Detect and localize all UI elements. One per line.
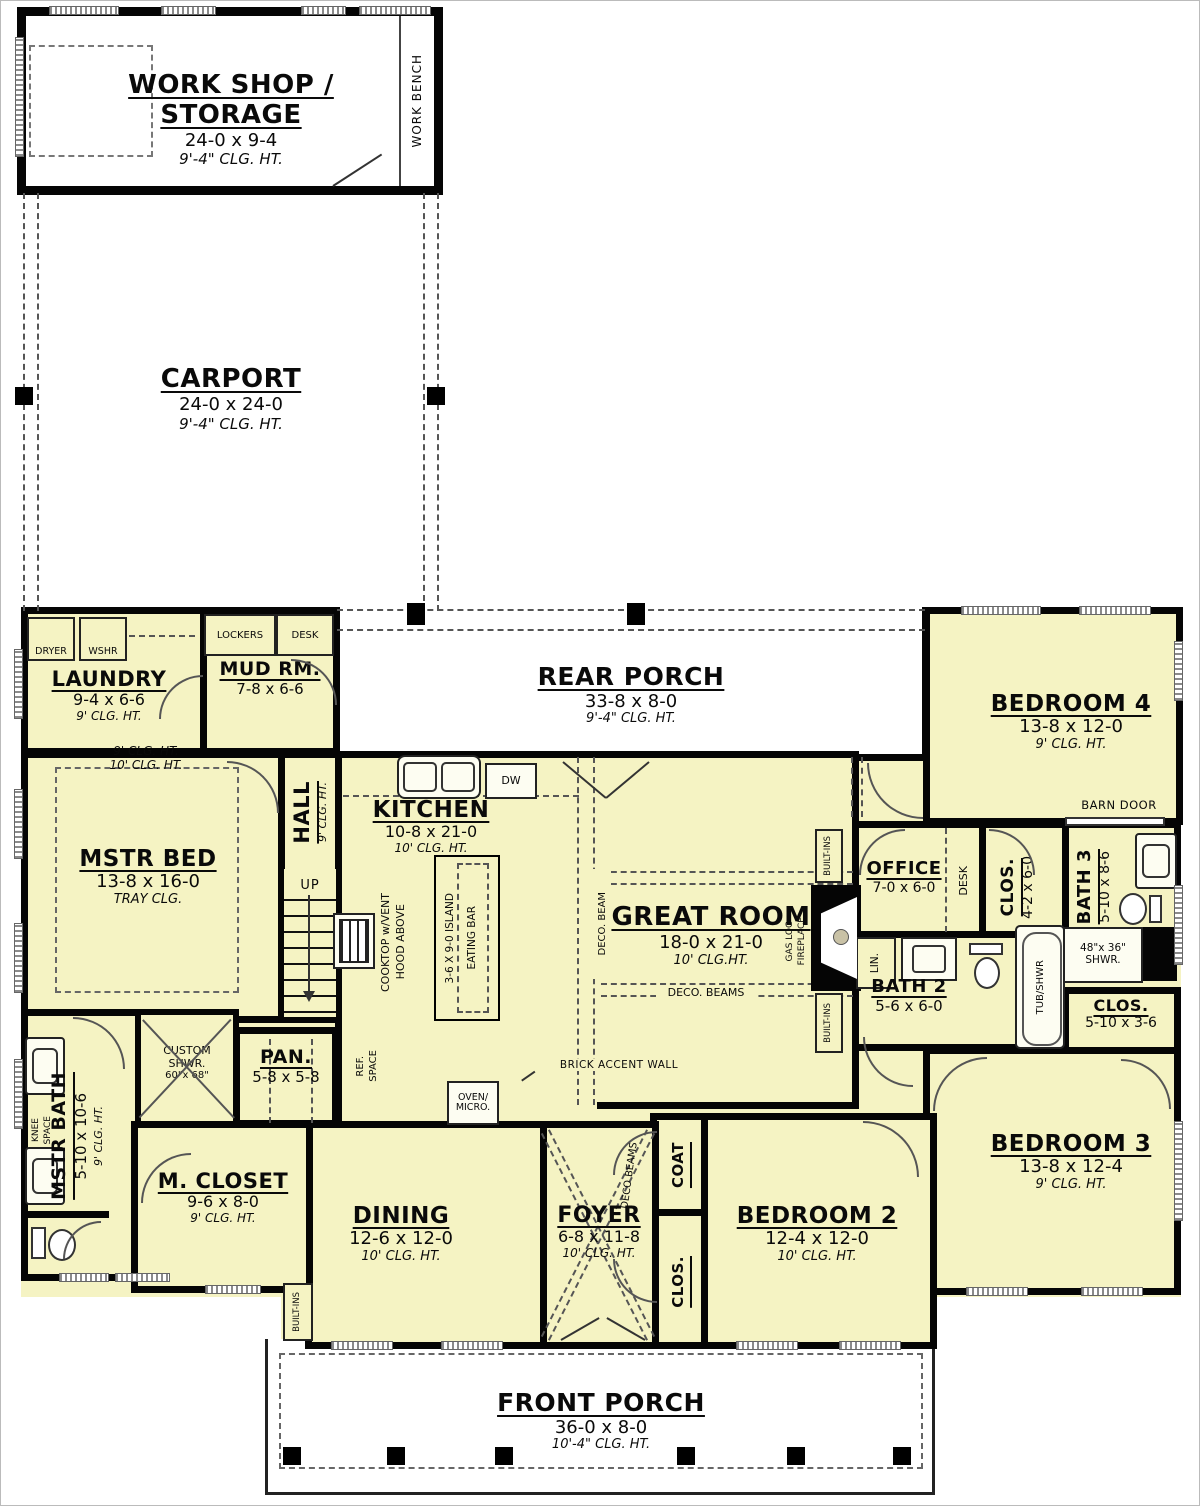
hall-label: HALL 9' CLG. HT. xyxy=(284,755,334,870)
mstr-bath-dims: 5-10 x 10-6 xyxy=(72,1093,90,1180)
linen-text: LIN. xyxy=(870,953,882,973)
bath3-sink-bowl xyxy=(1142,844,1170,878)
window-laundry-left xyxy=(14,649,23,719)
bath3-toilet-tank xyxy=(1149,895,1162,923)
window-workshop-top-4 xyxy=(359,6,431,15)
stairs-arrow-shaft xyxy=(308,895,310,991)
window-dining-bottom-2 xyxy=(441,1341,503,1350)
window-wc-bottom-2 xyxy=(115,1273,170,1282)
kitchen-island: 3-6 X 9-0 ISLAND EATING BAR xyxy=(434,855,500,1021)
mstr-bed-clg-pair: 9' CLG. HT. 10' CLG. HT. xyxy=(76,745,216,773)
bath2-toilet-tank xyxy=(969,943,1003,955)
kitchen-sink xyxy=(397,755,481,799)
barn-door-slab xyxy=(1065,817,1165,826)
carport-post-left xyxy=(15,387,33,405)
bedroom2-dims: 12-4 x 12-0 xyxy=(707,1229,927,1250)
pan-label: PAN. 5-8 x 5-8 xyxy=(239,1047,333,1086)
workshop-clg: 9'-4" CLG. HT. xyxy=(81,151,381,168)
sink-bowl-left xyxy=(403,762,437,792)
window-bedroom2-bottom-2 xyxy=(839,1341,901,1350)
deco-beam-label: DECO. BEAM xyxy=(593,869,611,979)
window-wc-bottom-1 xyxy=(59,1273,109,1282)
mstr-bed-name: MSTR BED xyxy=(53,846,243,872)
bath2-label: BATH 2 5-6 x 6-0 xyxy=(859,977,959,1015)
front-porch-post-6 xyxy=(893,1447,911,1465)
rear-porch-dims: 33-8 x 8-0 xyxy=(431,692,831,713)
window-mstr-bed-left-2 xyxy=(14,923,23,993)
kitchen-dims: 10-8 x 21-0 xyxy=(341,823,521,841)
dishwasher-text: DW xyxy=(501,775,520,787)
barn-door-text: BARN DOOR xyxy=(1081,798,1156,812)
kitchen-label: KITCHEN 10-8 x 21-0 10' CLG. HT. xyxy=(341,797,521,856)
built-ins-upper-text: BUILT-INS xyxy=(824,836,833,876)
mud-desk-text: DESK xyxy=(292,630,319,641)
cooktop-line2: HOOD ABOVE xyxy=(394,904,407,979)
bedroom3-name: BEDROOM 3 xyxy=(961,1131,1181,1157)
barn-door-label: BARN DOOR xyxy=(1063,799,1175,812)
island-dims-text: 3-6 X 9-0 ISLAND xyxy=(445,893,457,983)
office-desk-label: DESK xyxy=(949,841,977,921)
kitchen-name: KITCHEN xyxy=(341,797,521,823)
carport-post-right xyxy=(427,387,445,405)
front-porch-name: FRONT PORCH xyxy=(451,1389,751,1418)
bedroom3-clg: 9' CLG. HT. xyxy=(961,1178,1181,1193)
rear-porch-name: REAR PORCH xyxy=(431,663,831,692)
dining-name: DINING xyxy=(311,1203,491,1229)
bath3-name: BATH 3 xyxy=(1074,849,1095,924)
bedroom3-label: BEDROOM 3 13-8 x 12-4 9' CLG. HT. xyxy=(961,1131,1181,1193)
front-porch-post-2 xyxy=(387,1447,405,1465)
window-bedroom3-right xyxy=(1174,1121,1183,1221)
front-porch-post-4 xyxy=(677,1447,695,1465)
built-ins-dining-box: BUILT-INS xyxy=(283,1283,313,1341)
built-ins-lower-box: BUILT-INS xyxy=(815,993,843,1053)
window-workshop-left xyxy=(15,37,24,157)
fireplace-gas-log xyxy=(833,929,849,945)
kitchen-clg: 10' CLG. HT. xyxy=(341,842,521,856)
eating-bar-text: EATING BAR xyxy=(467,906,479,970)
dryer-text: DRYER xyxy=(35,647,67,657)
window-mstr-bed-left-1 xyxy=(14,789,23,859)
clos-bed3-dims: 5-10 x 3-6 xyxy=(1067,1015,1175,1031)
front-porch-post-5 xyxy=(787,1447,805,1465)
mstr-bed-clg-outer: 9' CLG. HT. xyxy=(76,745,216,759)
mstr-bed-dims: 13-8 x 16-0 xyxy=(53,872,243,893)
window-dining-bottom-1 xyxy=(331,1341,393,1350)
lockers-text: LOCKERS xyxy=(217,630,263,641)
window-bath3-right xyxy=(1174,885,1183,965)
front-porch-post-1 xyxy=(283,1447,301,1465)
window-bedroom4-right xyxy=(1174,641,1183,701)
knee-line1: KNEE xyxy=(31,1118,41,1142)
rear-porch-post-2 xyxy=(627,603,645,625)
mstr-bed-clg: TRAY CLG. xyxy=(53,893,243,908)
window-workshop-top-2 xyxy=(161,6,216,15)
gas-log-line1: GAS LOG xyxy=(785,921,795,961)
brick-accent-text: BRICK ACCENT WALL xyxy=(560,1059,678,1071)
dishwasher-box: DW xyxy=(485,763,537,799)
ref-line2: SPACE xyxy=(368,1050,379,1082)
foyer-dims: 6-8 x 11-8 xyxy=(539,1228,659,1246)
window-bedroom4-top-1 xyxy=(961,606,1041,615)
stairs-up-label: UP xyxy=(284,875,336,894)
built-ins-lower-text: BUILT-INS xyxy=(824,1003,833,1043)
carport-dims: 24-0 x 24-0 xyxy=(121,395,341,416)
shower-wall-block xyxy=(1143,927,1177,981)
work-bench-text: WORK BENCH xyxy=(410,54,424,148)
pan-dims: 5-8 x 5-8 xyxy=(239,1069,333,1086)
dining-clg: 10' CLG. HT. xyxy=(311,1250,491,1265)
custom-shwr-label: CUSTOM SHWR. 60"x 68" xyxy=(145,1045,229,1082)
sink-bowl-right xyxy=(441,762,475,792)
window-bedroom3-bottom-1 xyxy=(966,1287,1028,1296)
bedroom3-dims: 13-8 x 12-4 xyxy=(961,1157,1181,1178)
cooktop-box xyxy=(333,913,375,969)
dining-label: DINING 12-6 x 12-0 10' CLG. HT. xyxy=(311,1203,491,1265)
window-workshop-top-1 xyxy=(49,6,119,15)
bath3-toilet-bowl xyxy=(1119,893,1147,925)
gas-log-line2: FIREPLACE xyxy=(797,917,807,965)
ref-space-label: REF. SPACE xyxy=(339,1033,395,1099)
rear-porch-clg: 9'-4" CLG. HT. xyxy=(431,712,831,727)
bath2-sink xyxy=(901,937,957,981)
m-closet-clg: 9' CLG. HT. xyxy=(139,1212,307,1226)
cooktop-burners xyxy=(339,919,369,963)
carport-name: CARPORT xyxy=(121,365,341,395)
deco-beams-label: DECO. BEAMS xyxy=(656,987,756,1000)
hall-name: HALL xyxy=(290,781,314,844)
window-mstr-bath-left xyxy=(14,1059,23,1129)
work-bench-label: WORK BENCH xyxy=(401,41,433,161)
bedroom4-name: BEDROOM 4 xyxy=(961,691,1181,717)
coat-name: COAT xyxy=(669,1142,687,1188)
carport-clg: 9'-4" CLG. HT. xyxy=(121,416,341,433)
pan-name: PAN. xyxy=(239,1047,333,1069)
brick-accent-label: BRICK ACCENT WALL xyxy=(549,1059,689,1071)
knee-line2: SPACE xyxy=(43,1116,53,1145)
bath3-label: BATH 3 5-10 x 8-6 xyxy=(1069,831,1117,943)
clos-bed3-name: CLOS. xyxy=(1067,997,1175,1015)
bedroom2-label: BEDROOM 2 12-4 x 12-0 10' CLG. HT. xyxy=(707,1203,927,1265)
hall-cased-opening xyxy=(851,757,863,817)
ref-line1: REF. xyxy=(355,1056,366,1077)
mstr-bed-clg-inner: 10' CLG. HT. xyxy=(76,759,216,773)
clos-foyer-label: CLOS. xyxy=(656,1237,700,1327)
window-bedroom3-bottom-2 xyxy=(1081,1287,1143,1296)
mud-desk-box: DESK xyxy=(276,614,334,656)
tub-shwr-text: TUB/SHWR xyxy=(1035,960,1046,1014)
laundry-name: LAUNDRY xyxy=(29,667,189,691)
office-desk-text: DESK xyxy=(957,866,970,896)
clos-bed3-label: CLOS. 5-10 x 3-6 xyxy=(1067,997,1175,1031)
bath2-dims: 5-6 x 6-0 xyxy=(859,998,959,1015)
bedroom2-name: BEDROOM 2 xyxy=(707,1203,927,1229)
gas-log-fireplace-label: GAS LOG FIREPLACE xyxy=(783,891,809,991)
washer-box: WSHR xyxy=(79,617,127,661)
bedroom4-dims: 13-8 x 12-0 xyxy=(961,717,1181,738)
laundry-counter-dash xyxy=(129,635,195,637)
workshop-dims: 24-0 x 9-4 xyxy=(81,131,381,152)
workshop-label: WORK SHOP / STORAGE 24-0 x 9-4 9'-4" CLG… xyxy=(81,71,381,169)
oven-micro-box: OVEN/ MICRO. xyxy=(447,1081,499,1125)
oven-line2: MICRO. xyxy=(456,1103,490,1113)
window-bedroom2-bottom-1 xyxy=(736,1341,798,1350)
carport-label: CARPORT 24-0 x 24-0 9'-4" CLG. HT. xyxy=(121,365,341,433)
bath2-sink-bowl xyxy=(912,945,946,973)
coat-label: COAT xyxy=(656,1125,700,1205)
floor-plan: WORK BENCH WORK SHOP / STORAGE 24-0 x 9-… xyxy=(0,0,1200,1506)
clos-foyer-name: CLOS. xyxy=(669,1256,687,1308)
washer-text: WSHR xyxy=(88,647,117,657)
window-workshop-top-3 xyxy=(301,6,346,15)
rear-porch-label: REAR PORCH 33-8 x 8-0 9'-4" CLG. HT. xyxy=(431,663,831,727)
dining-dims: 12-6 x 12-0 xyxy=(311,1229,491,1250)
tub-shwr: TUB/SHWR xyxy=(1015,925,1065,1049)
lockers-box: LOCKERS xyxy=(204,614,276,656)
window-bedroom4-top-2 xyxy=(1079,606,1151,615)
cooktop-label: COOKTOP w/VENT HOOD ABOVE xyxy=(377,877,409,1007)
front-porch-post-3 xyxy=(495,1447,513,1465)
cooktop-line1: COOKTOP w/VENT xyxy=(379,893,392,992)
bath2-name: BATH 2 xyxy=(859,977,959,998)
stairs-arrow-head xyxy=(303,991,315,1002)
deco-beams-text: DECO. BEAMS xyxy=(668,986,745,999)
built-ins-dining-text: BUILT-INS xyxy=(293,1292,302,1332)
bedroom4-clg: 9' CLG. HT. xyxy=(961,738,1181,753)
workshop-name: WORK SHOP / STORAGE xyxy=(81,71,381,131)
knee-space-label: KNEE SPACE xyxy=(25,1099,59,1161)
front-porch-dims: 36-0 x 8-0 xyxy=(451,1418,751,1439)
bath2-toilet-bowl xyxy=(974,957,1000,989)
front-porch-label: FRONT PORCH 36-0 x 8-0 10'-4" CLG. HT. xyxy=(451,1389,751,1453)
bath3-dims: 5-10 x 8-6 xyxy=(1097,851,1113,923)
mstr-toilet-tank xyxy=(31,1227,46,1259)
mstr-bed-label: MSTR BED 13-8 x 16-0 TRAY CLG. xyxy=(53,846,243,908)
office-dims: 7-0 x 6-0 xyxy=(859,880,949,896)
custom-line1: CUSTOM xyxy=(145,1045,229,1058)
deco-beam-text: DECO. BEAM xyxy=(597,892,608,955)
dryer-box: DRYER xyxy=(27,617,75,661)
custom-line3: 60"x 68" xyxy=(145,1070,229,1082)
shwr-line2: SHWR. xyxy=(1085,955,1120,967)
hall-clg: 9' CLG. HT. xyxy=(316,782,329,842)
bath3-sink xyxy=(1135,833,1177,889)
window-m-closet-bottom xyxy=(205,1285,261,1294)
rear-porch-post-1 xyxy=(407,603,425,625)
built-ins-upper-box: BUILT-INS xyxy=(815,829,843,883)
mstr-bath-clg: 9' CLG. HT. xyxy=(92,1106,105,1166)
island-eating-bar: EATING BAR xyxy=(457,863,489,1013)
bedroom2-clg: 10' CLG. HT. xyxy=(707,1250,927,1265)
up-text: UP xyxy=(300,878,319,893)
bedroom4-label: BEDROOM 4 13-8 x 12-0 9' CLG. HT. xyxy=(961,691,1181,753)
